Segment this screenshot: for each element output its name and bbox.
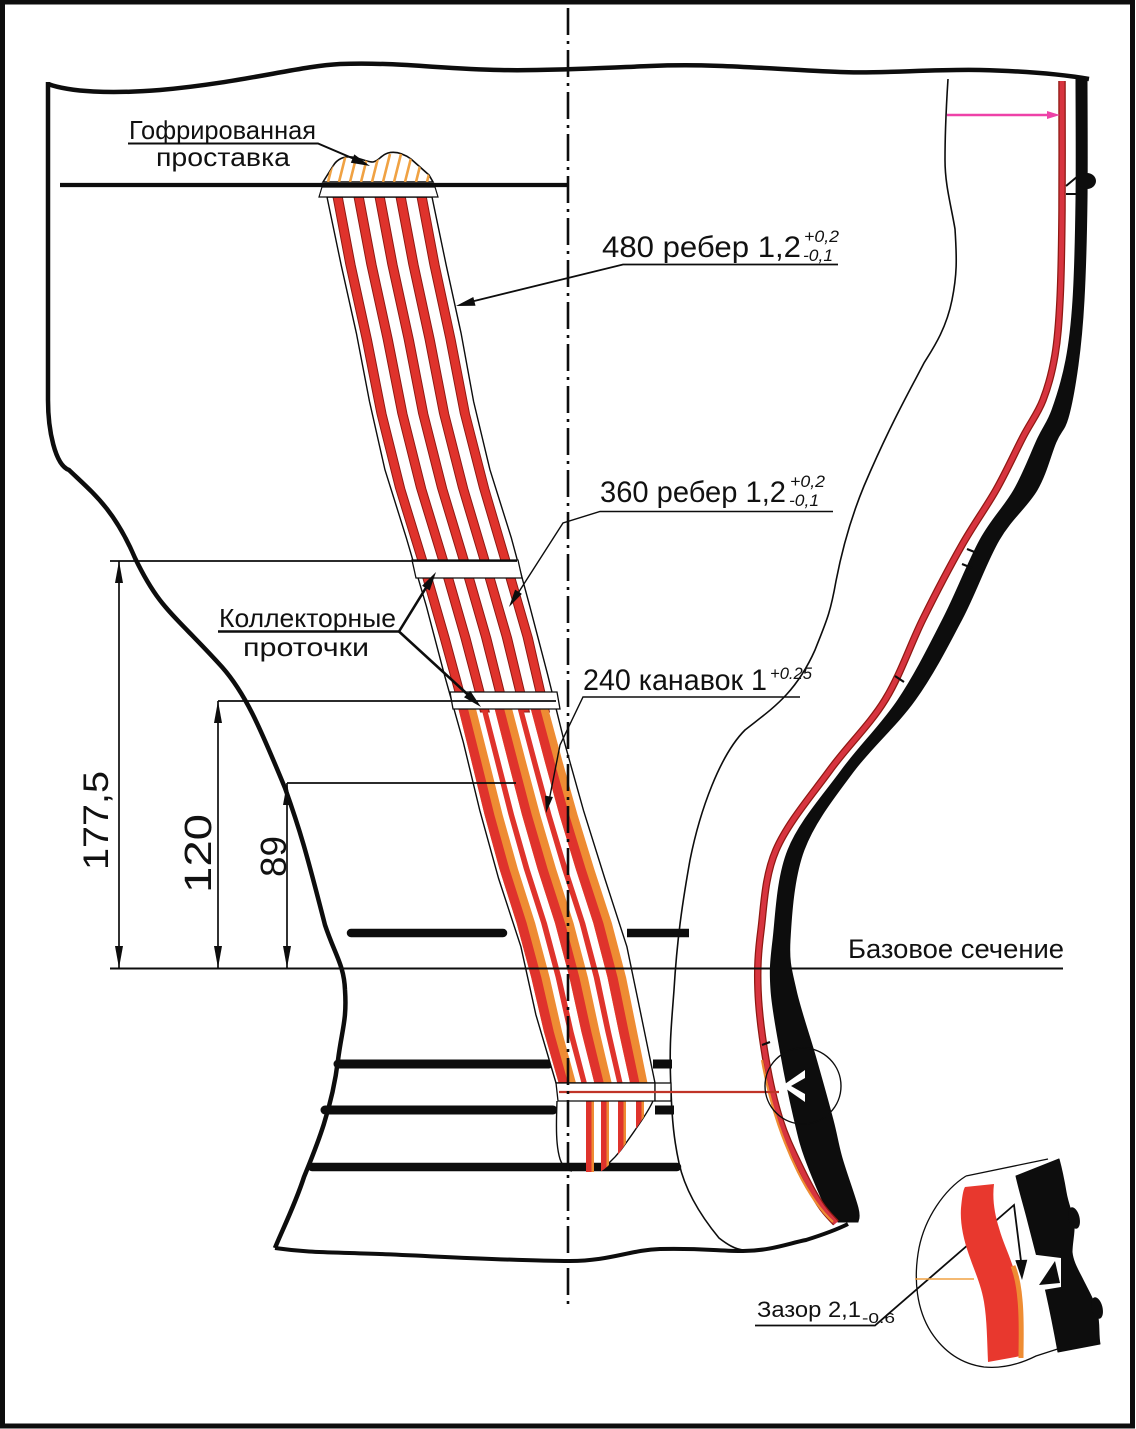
svg-text:-0,1: -0,1 xyxy=(789,491,819,510)
svg-text:+0,2: +0,2 xyxy=(804,227,840,246)
svg-text:проточки: проточки xyxy=(243,632,369,662)
svg-text:480 ребер 1,2: 480 ребер 1,2 xyxy=(602,231,801,264)
svg-text:Гофрированная: Гофрированная xyxy=(129,115,316,145)
svg-text:89: 89 xyxy=(253,836,294,877)
svg-text:+0,2: +0,2 xyxy=(790,472,826,491)
svg-text:+0.25: +0.25 xyxy=(770,664,813,683)
svg-text:Зазор 2,1: Зазор 2,1 xyxy=(757,1297,861,1322)
svg-text:Коллекторные: Коллекторные xyxy=(219,603,396,633)
svg-text:проставка: проставка xyxy=(156,142,291,172)
svg-text:240 канавок 1: 240 канавок 1 xyxy=(583,664,767,697)
svg-text:177,5: 177,5 xyxy=(77,771,116,870)
svg-text:Базовое сечение: Базовое сечение xyxy=(848,934,1064,964)
svg-text:-0,1: -0,1 xyxy=(803,246,833,265)
svg-text:360 ребер 1,2: 360 ребер 1,2 xyxy=(600,476,786,509)
svg-text:120: 120 xyxy=(178,814,220,893)
